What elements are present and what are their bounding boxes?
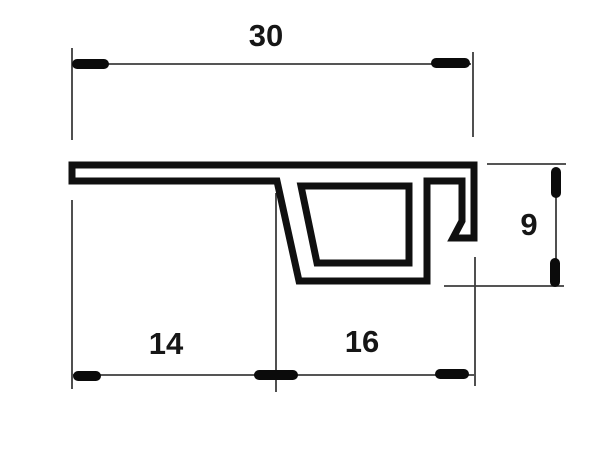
dim-label-right-width: 16 <box>345 324 379 359</box>
dimension-lines-group <box>72 48 566 392</box>
dim-label-right-height: 9 <box>520 207 537 242</box>
dim-label-total-width: 30 <box>249 18 283 53</box>
profile-outline-group <box>72 165 474 281</box>
profile-inner-cavity <box>301 186 409 263</box>
drawing-page: 30 14 16 9 <box>0 0 600 450</box>
dim-label-left-width: 14 <box>149 326 184 361</box>
profile-technical-drawing: 30 14 16 9 <box>0 0 600 450</box>
profile-outer-contour <box>72 165 474 281</box>
